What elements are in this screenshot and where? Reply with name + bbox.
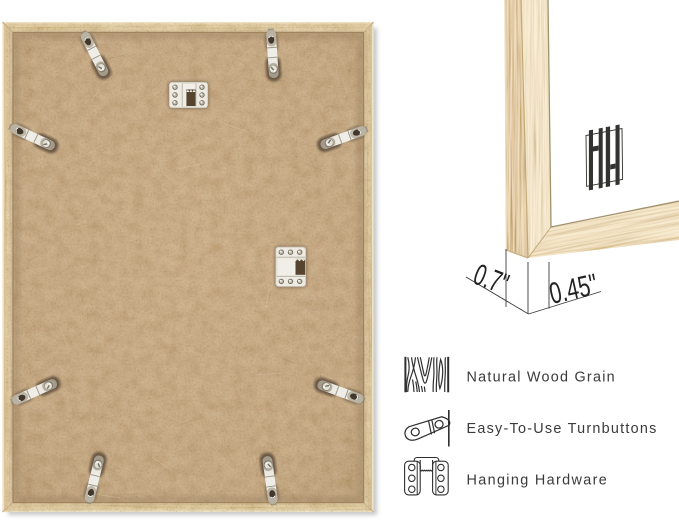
svg-text:Easy-To-Use Turnbuttons: Easy-To-Use Turnbuttons xyxy=(467,421,658,437)
svg-text:Natural Wood Grain: Natural Wood Grain xyxy=(467,369,616,385)
svg-text:Hanging Hardware: Hanging Hardware xyxy=(467,473,609,489)
